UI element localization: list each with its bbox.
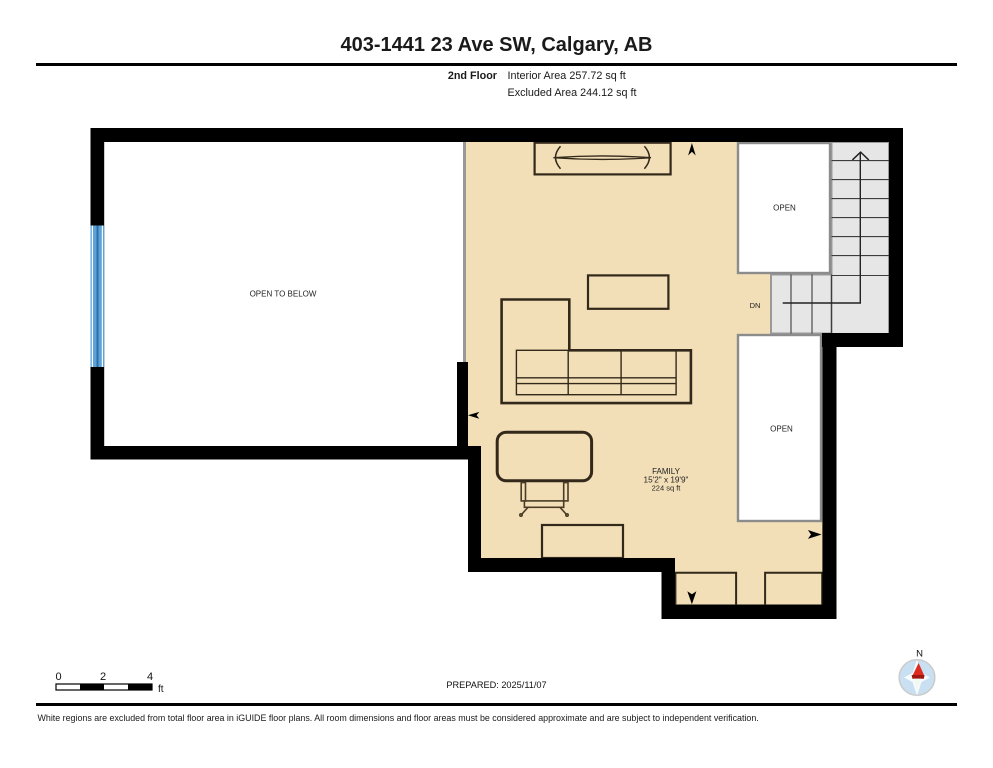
svg-text:2: 2 xyxy=(100,671,106,683)
svg-text:N: N xyxy=(916,649,923,660)
svg-text:OPEN TO BELOW: OPEN TO BELOW xyxy=(250,290,317,299)
svg-text:OPEN: OPEN xyxy=(770,425,793,434)
svg-text:ft: ft xyxy=(158,684,164,695)
svg-text:224 sq ft: 224 sq ft xyxy=(652,484,682,493)
svg-text:PREPARED: 2025/11/07: PREPARED: 2025/11/07 xyxy=(446,680,546,690)
svg-text:0: 0 xyxy=(55,671,61,683)
svg-text:4: 4 xyxy=(147,671,153,683)
svg-text:DN: DN xyxy=(750,301,761,310)
svg-text:OPEN: OPEN xyxy=(773,204,796,213)
